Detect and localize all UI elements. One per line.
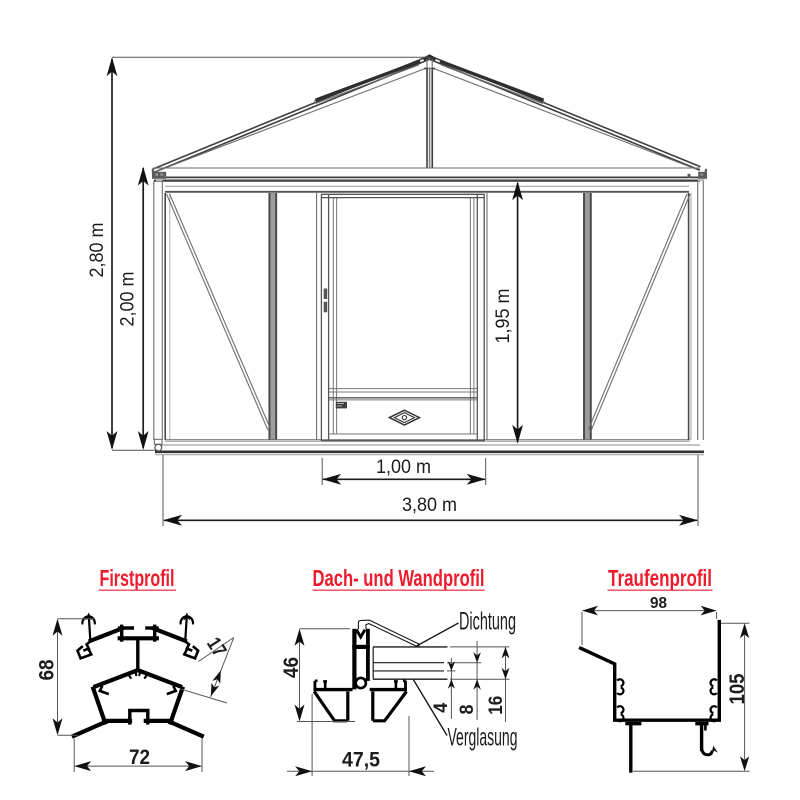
svg-text:98: 98 xyxy=(650,595,667,612)
svg-text:Traufenprofil: Traufenprofil xyxy=(608,565,712,591)
svg-text:72: 72 xyxy=(129,746,150,769)
svg-text:68: 68 xyxy=(36,659,59,680)
svg-text:1,95 m: 1,95 m xyxy=(492,289,514,344)
svg-text:Firstprofil: Firstprofil xyxy=(100,565,175,591)
svg-text:16: 16 xyxy=(486,696,507,715)
svg-text:2,80 m: 2,80 m xyxy=(86,223,108,278)
svg-text:Dach- und Wandprofil: Dach- und Wandprofil xyxy=(313,565,485,591)
svg-text:47,5: 47,5 xyxy=(342,748,380,771)
svg-text:2,00 m: 2,00 m xyxy=(117,272,139,327)
svg-text:105: 105 xyxy=(726,673,749,704)
svg-text:1,00 m: 1,00 m xyxy=(376,456,431,478)
svg-text:8: 8 xyxy=(457,705,478,715)
svg-text:Verglasung: Verglasung xyxy=(448,724,518,752)
svg-text:3,80 m: 3,80 m xyxy=(402,494,457,516)
svg-text:4: 4 xyxy=(431,702,452,712)
svg-text:Dichtung: Dichtung xyxy=(459,608,516,636)
svg-text:46: 46 xyxy=(280,657,303,678)
